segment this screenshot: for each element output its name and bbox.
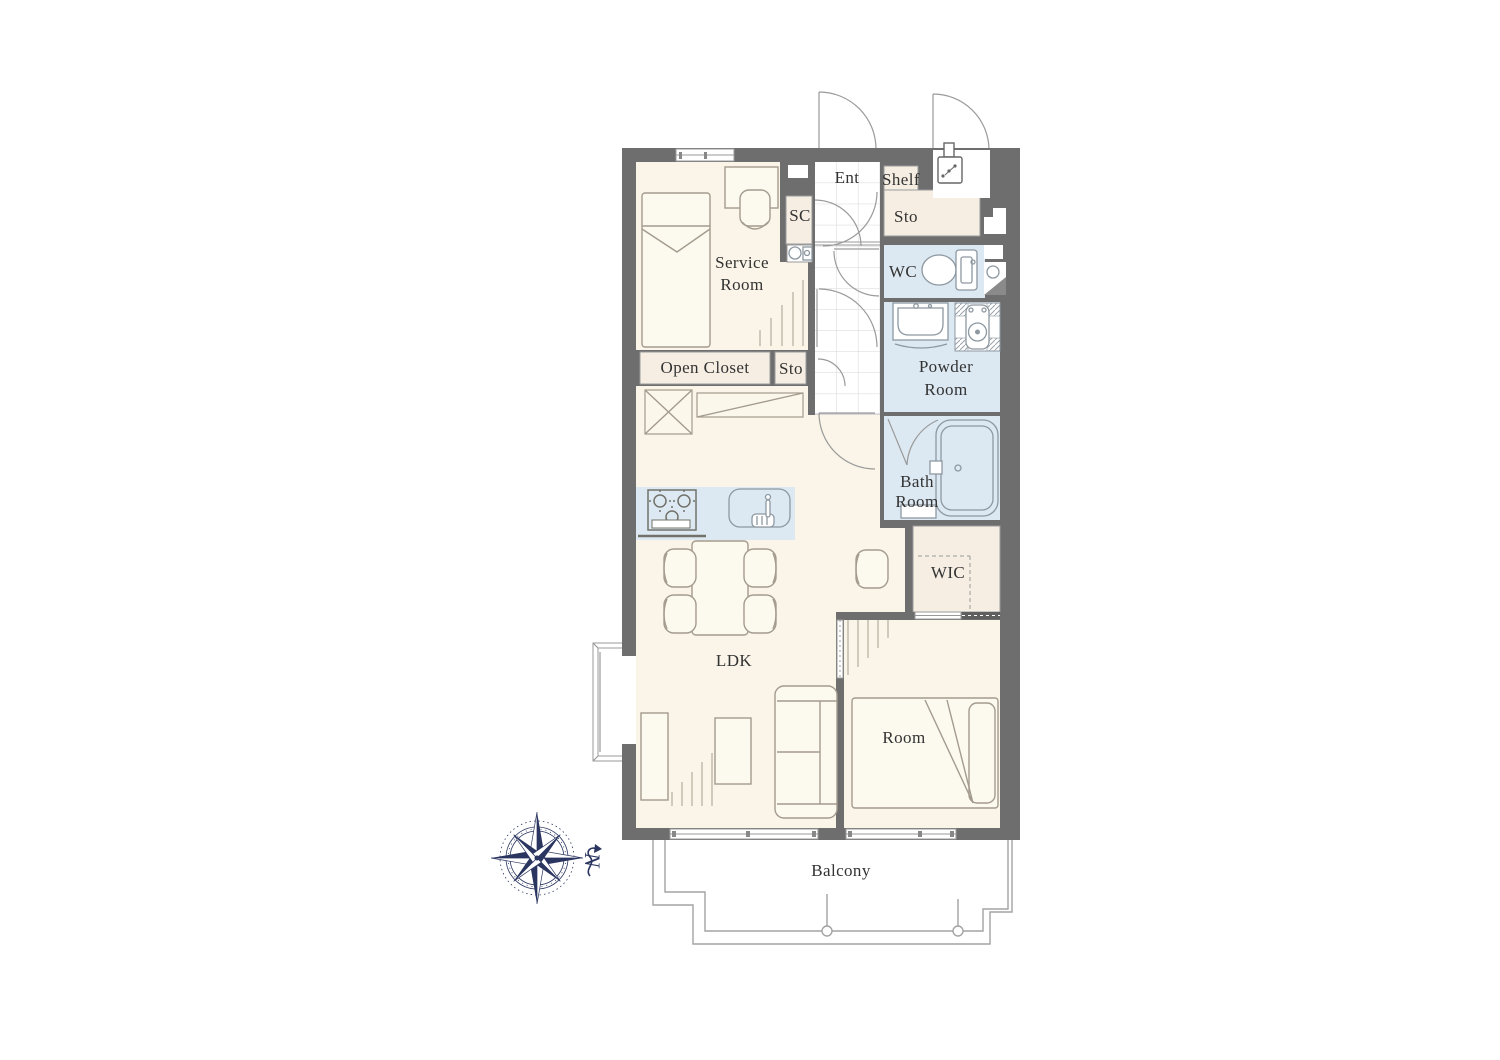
floor-plan-drawing: N Ent Shelf Sto SC Service Room WC Powde… [0, 0, 1500, 1060]
sliding-partition [837, 620, 843, 678]
floor-plan-page: N Ent Shelf Sto SC Service Room WC Powde… [0, 0, 1500, 1060]
balcony-drain-icon [822, 926, 832, 936]
hand-basin-icon [787, 245, 812, 262]
sofa-icon [775, 686, 837, 818]
low-table-icon [715, 718, 751, 784]
label-sto-lower: Sto [779, 359, 803, 378]
tv-board-icon [641, 713, 668, 800]
label-sc: SC [789, 206, 811, 225]
north-indicator: N [580, 844, 605, 876]
label-service-room-2: Room [720, 275, 763, 294]
bay-window-opening [622, 656, 636, 744]
chair-icon [856, 550, 888, 588]
bed-icon [642, 193, 710, 347]
balcony-drain-icon [953, 926, 963, 936]
washing-machine-icon [955, 303, 1000, 351]
label-ldk: LDK [716, 651, 752, 670]
window-room-balcony [846, 829, 956, 839]
desk-chair-icon [740, 190, 770, 229]
label-service-room-1: Service [715, 253, 769, 272]
compass-rose: N [491, 812, 605, 904]
label-powder-room-1: Powder [919, 357, 973, 376]
label-room: Room [882, 728, 925, 747]
label-wic: WIC [931, 563, 965, 582]
label-wc: WC [889, 262, 917, 281]
label-bath-room-2: Room [895, 492, 938, 511]
meter-box-door-swing [933, 94, 989, 150]
label-shelf: Shelf [882, 170, 920, 189]
window-ldk-balcony [670, 829, 818, 839]
label-powder-room-2: Room [924, 380, 967, 399]
label-bath-room-1: Bath [900, 472, 934, 491]
pipe-space-icon [984, 208, 1006, 295]
entrance-door-swing [819, 92, 876, 150]
label-open-closet: Open Closet [661, 358, 750, 377]
label-ent: Ent [835, 168, 860, 187]
label-sto-upper: Sto [894, 207, 918, 226]
dining-table-icon [692, 541, 748, 635]
label-balcony: Balcony [811, 861, 871, 880]
north-label: N [580, 852, 605, 869]
north-arrow-icon [594, 844, 602, 853]
bed-icon [852, 698, 998, 808]
window-service-top [676, 149, 734, 161]
balcony-outline [653, 840, 1012, 944]
